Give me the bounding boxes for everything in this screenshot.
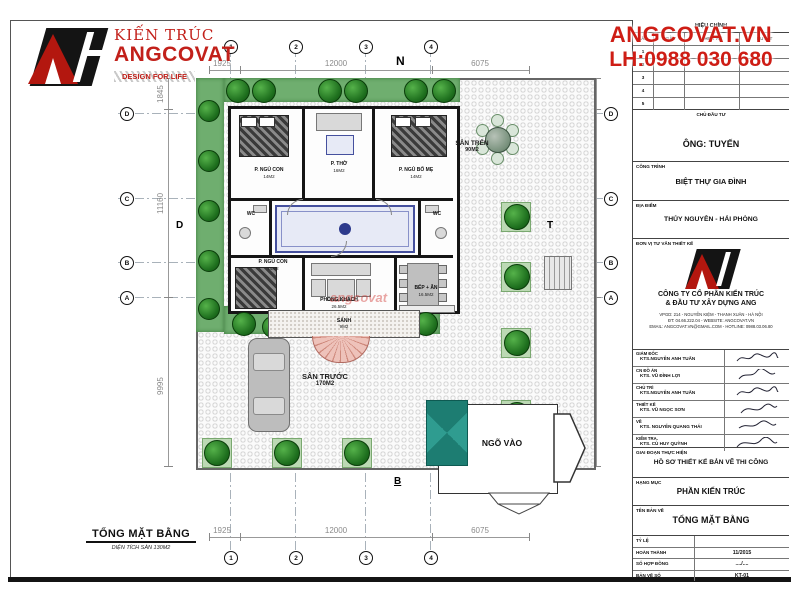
revision-row: 4 <box>633 85 789 98</box>
field-label: GIAI ĐOẠN THỰC HIỆN <box>633 448 789 455</box>
axis-bubble-4: 4 <box>424 551 438 565</box>
revision-num: 4 <box>633 85 654 97</box>
pillow <box>415 117 431 127</box>
field-ten-ban-ve: TÊN BẢN VẼ TỔNG MẶT BẰNG <box>633 506 789 536</box>
drawing-title-text: TỔNG MẶT BẰNG <box>86 528 196 543</box>
tree-icon <box>344 440 370 466</box>
entrance-area: NGÕ VÀO <box>438 402 590 522</box>
company-email: EMAIL: ANGCOVAT.VN@GMAIL.COM - HOTLINE: … <box>633 324 789 330</box>
tree-petal <box>491 152 504 165</box>
signature-scribble <box>735 369 779 381</box>
chair <box>438 265 447 274</box>
room-area: 14M2 <box>239 174 299 180</box>
direction-south: B <box>394 476 401 487</box>
tree-icon <box>198 250 220 272</box>
dim-value: 12000 <box>286 59 386 68</box>
room-label-ngu-con-2: P. NGỦ CON 14M2 <box>247 259 299 271</box>
info-row-so-hop-dong: SỐ HỢP ĐỒNG ..../.... <box>633 559 789 571</box>
signature-name: KTS. CÙ HUY QUỲNH <box>636 441 721 446</box>
field-hang-muc: HẠNG MỤC PHẦN KIẾN TRÚC <box>633 478 789 506</box>
tree-icon <box>198 200 220 222</box>
toilet <box>435 227 447 239</box>
axis-bubble-3: 3 <box>359 40 373 54</box>
signature-scribble <box>735 420 779 432</box>
revision-cell <box>685 72 740 84</box>
yard-area: 170M2 <box>280 381 370 387</box>
axis-bubble-3: 3 <box>359 551 373 565</box>
axis-bubble-b: B <box>604 256 618 270</box>
field-label: CHỦ ĐẦU TƯ <box>633 110 789 117</box>
porch: SẢNH 9M2 <box>268 310 420 338</box>
yard-area: 90M2 <box>440 147 504 153</box>
revision-cell <box>685 85 740 97</box>
contact-overlay: ANGCOVAT.VN LH:0988 030 680 <box>586 22 796 72</box>
signature-name: KTS. VŨ ĐÌNH LỢI <box>636 373 721 378</box>
revision-num: 5 <box>633 98 654 110</box>
pillow <box>259 117 275 127</box>
tree-icon <box>232 312 256 336</box>
info-label: SỐ HỢP ĐỒNG <box>633 559 695 570</box>
brand-tagline: DESIGN FOR LIFE <box>114 71 195 82</box>
signature-row: THIẾT KẾ KTS. VŨ NGỌC SƠN <box>633 401 789 418</box>
field-value: ÔNG: TUYẾN <box>633 139 789 149</box>
info-value <box>695 536 789 547</box>
axis-bubble-2: 2 <box>289 551 303 565</box>
interior-wall <box>372 109 375 198</box>
dim-tick <box>432 66 433 74</box>
room-name: WC <box>235 211 267 218</box>
axis-bubble-a: A <box>120 291 134 305</box>
dim-value: 6075 <box>440 526 520 535</box>
room-area: 9M2 <box>337 324 351 330</box>
website-text: ANGCOVAT.VN <box>586 22 796 48</box>
field-value: TỔNG MẶT BẰNG <box>633 515 789 525</box>
interior-wall <box>418 198 421 258</box>
dim-value: 9995 <box>156 356 165 416</box>
watermark-text: angcovat <box>330 290 387 305</box>
signature-name: KTS. NGUYỄN QUANG THÁI <box>636 424 721 429</box>
field-giai-doan: GIAI ĐOẠN THỰC HIỆN HỒ SƠ THIẾT KẾ BẢN V… <box>633 448 789 478</box>
field-don-vi: ĐƠN VỊ TƯ VẤN THIẾT KẾ CÔNG TY CỔ PHẦN K… <box>633 239 789 350</box>
revision-cell <box>740 85 789 97</box>
tree-icon <box>318 79 342 103</box>
info-row-ty-le: TỶ LỆ <box>633 536 789 548</box>
field-dia-diem: ĐỊA ĐIỂM THỦY NGUYÊN - HẢI PHÒNG <box>633 201 789 239</box>
info-value: 11/2015 <box>695 548 789 559</box>
field-value: THỦY NGUYÊN - HẢI PHÒNG <box>633 216 789 223</box>
drawing-sheet: KIẾN TRÚC ANGCOVAT DESIGN FOR LIFE ANGCO… <box>0 0 799 600</box>
info-label: BẢN VẼ SỐ <box>633 571 695 582</box>
drawing-title: TỔNG MẶT BẰNG DIỆN TÍCH SÀN 130M2 <box>86 528 196 551</box>
drawing-subtitle-text: DIỆN TÍCH SÀN 130M2 <box>86 545 196 551</box>
field-value: BIỆT THỰ GIA ĐÌNH <box>633 177 789 186</box>
revision-num: 3 <box>633 72 654 84</box>
pillow <box>241 117 257 127</box>
tree-petal <box>491 114 504 127</box>
info-value: ..../.... <box>695 559 789 570</box>
dim-line-right <box>596 78 597 466</box>
dim-line-left <box>168 78 169 466</box>
toilet <box>239 227 251 239</box>
af-logo-icon <box>28 28 106 86</box>
room-name: WC <box>421 211 453 218</box>
signature-meta: GIÁM ĐỐC KTS.NGUYỄN ANH TUẤN <box>633 350 725 366</box>
armchair <box>311 279 326 297</box>
signature-meta: CN ĐỒ ÁN KTS. VŨ ĐÌNH LỢI <box>633 367 725 383</box>
info-row-hoan-thanh: HOÀN THÀNH 11/2015 <box>633 548 789 560</box>
entrance-threshold <box>488 492 550 516</box>
revision-cell <box>740 72 789 84</box>
signature-area <box>725 350 789 366</box>
dim-tick <box>529 66 530 74</box>
signature-name: KTS.NGUYỄN ANH TUẤN <box>636 390 721 395</box>
tree-icon <box>504 264 530 290</box>
field-chu-dau-tu: CHỦ ĐẦU TƯ ÔNG: TUYẾN <box>633 110 789 162</box>
chair <box>399 265 408 274</box>
axis-bubble-b: B <box>120 256 134 270</box>
revision-cell <box>654 98 685 110</box>
tree-icon <box>404 79 428 103</box>
san-truoc-label: SÂN TRƯỚC 170M2 <box>280 372 370 387</box>
tree-icon <box>198 298 220 320</box>
yard-name: SÂN TRÊN <box>440 140 504 147</box>
signature-scribble <box>735 386 779 398</box>
yard-name: SÂN TRƯỚC <box>280 372 370 381</box>
tree-icon <box>504 204 530 230</box>
big-tree-icon <box>474 116 520 162</box>
revision-cell <box>654 72 685 84</box>
axis-bubble-2: 2 <box>289 40 303 54</box>
company-name-1: CÔNG TY CỔ PHẦN KIẾN TRÚC <box>633 290 789 299</box>
room-area: 16M2 <box>311 168 367 174</box>
field-label: HẠNG MỤC <box>633 478 789 485</box>
logo-notch <box>85 50 103 56</box>
brand-kien-truc: KIẾN TRÚC <box>114 26 244 44</box>
car-rear-window <box>253 397 285 415</box>
signature-row: CN ĐỒ ÁN KTS. VŨ ĐÌNH LỢI <box>633 367 789 384</box>
phone-text: LH:0988 030 680 <box>586 48 796 72</box>
tree-icon <box>274 440 300 466</box>
tree-icon <box>198 150 220 172</box>
door-swing <box>287 199 303 215</box>
info-label: TỶ LỆ <box>633 536 695 547</box>
axis-bubble-d: D <box>604 107 618 121</box>
signature-meta: CHỦ TRÌ KTS.NGUYỄN ANH TUẤN <box>633 384 725 400</box>
direction-north: N <box>396 54 405 68</box>
dim-tick <box>164 466 173 467</box>
sofa <box>311 263 371 276</box>
info-row-ban-ve-so: BẢN VẼ SỐ KT-01 <box>633 571 789 582</box>
field-label: TÊN BẢN VẼ <box>633 506 789 513</box>
side-steps <box>544 256 572 290</box>
room-label-sanh: SẢNH 9M2 <box>337 318 351 330</box>
room-label-tho: P. THỜ 16M2 <box>311 161 367 173</box>
signature-area <box>725 401 789 417</box>
signature-name: KTS.NGUYỄN ANH TUẤN <box>636 356 721 361</box>
axis-bubble-4: 4 <box>424 40 438 54</box>
revision-row: 3 <box>633 72 789 85</box>
company-name-2: & ĐẦU TƯ XÂY DỰNG ANG <box>633 299 789 308</box>
tree-icon <box>204 440 230 466</box>
tree-icon <box>198 100 220 122</box>
room-label-ngu-bo-me: P. NGỦ BỐ MẸ 14M2 <box>381 167 451 179</box>
brand-text: KIẾN TRÚC ANGCOVAT DESIGN FOR LIFE <box>114 26 244 84</box>
tree-icon <box>252 79 276 103</box>
car-icon <box>248 338 290 432</box>
pillow <box>395 117 411 127</box>
signature-meta: VẼ KTS. NGUYỄN QUANG THÁI <box>633 418 725 434</box>
axis-bubble-c: C <box>120 192 134 206</box>
ngo-vao-label: NGÕ VÀO <box>464 438 540 448</box>
signature-area <box>725 367 789 383</box>
room-area: 14M2 <box>381 174 451 180</box>
dim-tick <box>164 109 173 110</box>
tree-icon <box>432 79 456 103</box>
axis-bubble-1: 1 <box>224 551 238 565</box>
field-label: ĐƠN VỊ TƯ VẤN THIẾT KẾ <box>633 239 789 246</box>
field-cong-trinh: CÔNG TRÌNH BIỆT THỰ GIA ĐÌNH <box>633 162 789 201</box>
door-swing <box>376 199 392 215</box>
direction-west: T <box>547 220 553 231</box>
dim-value: 11160 <box>156 168 165 238</box>
room-area: 14M2 <box>247 266 299 272</box>
dim-tick <box>164 297 173 298</box>
signature-row: VẼ KTS. NGUYỄN QUANG THÁI <box>633 418 789 435</box>
revision-cell <box>685 98 740 110</box>
car-windshield <box>253 353 285 371</box>
field-label: ĐỊA ĐIỂM <box>633 201 789 208</box>
revision-row: 5 <box>633 98 789 110</box>
dim-line-top <box>209 70 529 71</box>
room-label-wc-right: WC <box>421 211 453 218</box>
signature-row: GIÁM ĐỐC KTS.NGUYỄN ANH TUẤN <box>633 350 789 367</box>
rug-medallion <box>339 223 351 235</box>
revision-cell <box>740 98 789 110</box>
signature-meta: THIẾT KẾ KTS. VŨ NGỌC SƠN <box>633 401 725 417</box>
interior-wall <box>302 109 305 198</box>
signature-scribble <box>735 403 779 415</box>
dim-tick <box>432 533 433 541</box>
direction-east: D <box>176 220 183 231</box>
san-tren-label: SÂN TRÊN 90M2 <box>440 140 504 153</box>
tree-icon <box>344 79 368 103</box>
room-label-bep-an: BẾP + ĂN 16.5M2 <box>399 285 453 297</box>
tree-icon <box>504 330 530 356</box>
entrance-arrow-icon <box>552 406 588 490</box>
brand-name: ANGCOVAT <box>114 44 244 66</box>
signature-row: CHỦ TRÌ KTS.NGUYỄN ANH TUẤN <box>633 384 789 401</box>
field-value: PHẦN KIẾN TRÚC <box>633 487 789 496</box>
interior-wall <box>394 255 397 311</box>
signature-area <box>725 384 789 400</box>
axis-bubble-d: D <box>120 107 134 121</box>
altar-table <box>316 113 362 131</box>
signature-table: GIÁM ĐỐC KTS.NGUYỄN ANH TUẤN CN ĐỒ ÁN KT… <box>633 350 789 448</box>
signature-area <box>725 418 789 434</box>
info-value: KT-01 <box>695 571 789 582</box>
dim-tick <box>529 533 530 541</box>
signature-scribble <box>735 352 779 364</box>
interior-wall <box>269 198 272 258</box>
title-block: HIỆU CHỈNH LẦN NGÀY THIẾT KẾ DUYỆT 1 2 3 <box>632 20 789 577</box>
room-label-ngu-con-1: P. NGỦ CON 14M2 <box>239 167 299 179</box>
signature-name: KTS. VŨ NGỌC SƠN <box>636 407 721 412</box>
axis-bubble-a: A <box>604 291 618 305</box>
info-label: HOÀN THÀNH <box>633 548 695 559</box>
field-label: CÔNG TRÌNH <box>633 162 789 169</box>
worship-mat <box>326 135 354 155</box>
gate-roof-icon <box>426 400 468 466</box>
axis-bubble-c: C <box>604 192 618 206</box>
room-area: 16.5M2 <box>399 292 453 298</box>
field-value: HỒ SƠ THIẾT KẾ BẢN VẼ THI CÔNG <box>633 459 789 466</box>
dim-line-bottom <box>209 537 529 538</box>
dim-value: 12000 <box>286 526 386 535</box>
info-table: TỶ LỆ HOÀN THÀNH 11/2015 SỐ HỢP ĐỒNG ...… <box>633 536 789 577</box>
house-plan: P. NGỦ CON 14M2 P. THỜ 16M2 P. NGỦ BỐ MẸ… <box>228 106 460 314</box>
interior-wall <box>302 255 305 311</box>
room-label-wc-left: WC <box>235 211 267 218</box>
revision-cell <box>654 85 685 97</box>
dim-value: 6075 <box>440 59 520 68</box>
brand-logo: KIẾN TRÚC ANGCOVAT DESIGN FOR LIFE <box>28 26 238 90</box>
bed <box>235 267 277 309</box>
dim-value: 1925 <box>196 526 248 535</box>
af-logo-small-icon <box>683 249 739 289</box>
